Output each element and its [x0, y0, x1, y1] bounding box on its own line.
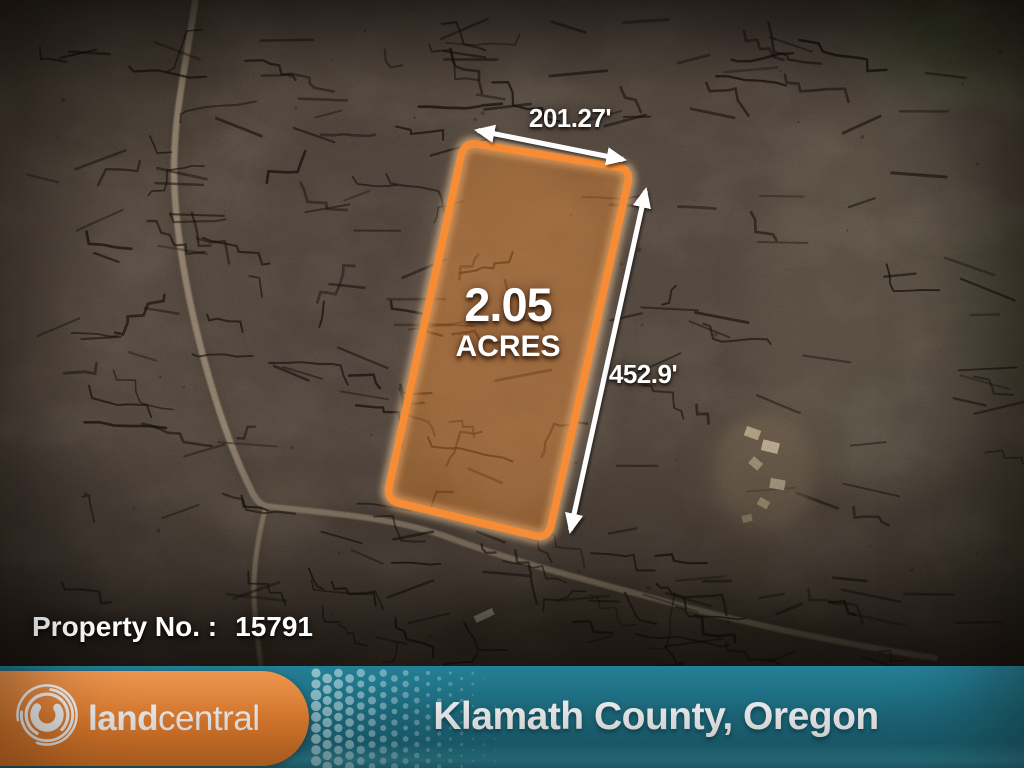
width-dimension-label: 201.27'	[470, 103, 670, 134]
listing-image: 201.27' 452.9' 2.05 ACRES Property No. :…	[0, 0, 1024, 768]
county-label: Klamath County, Oregon	[300, 666, 1012, 768]
acreage-label: 2.05 ACRES	[408, 281, 608, 362]
brand-wordmark: landcentral	[88, 671, 260, 766]
brand-word-central: central	[158, 699, 260, 739]
property-number-value: 15791	[235, 611, 313, 642]
acres-word: ACRES	[408, 332, 608, 362]
property-number-label: Property No. :	[32, 611, 217, 642]
landcentral-logo-icon	[16, 684, 78, 746]
brand-plate: landcentral	[0, 671, 309, 766]
top-shade	[0, 0, 1024, 92]
height-dimension-label: 452.9'	[588, 359, 698, 390]
property-number: Property No. :15791	[32, 611, 313, 643]
brand-word-land: land	[88, 699, 158, 739]
acreage-value: 2.05	[408, 281, 608, 328]
